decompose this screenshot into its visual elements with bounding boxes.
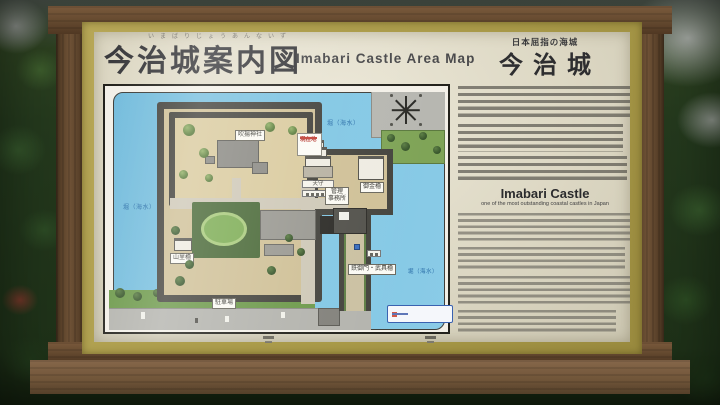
shrine-annex	[252, 162, 268, 174]
parking-label: 駐車場	[212, 298, 236, 309]
west-turret-building	[174, 238, 192, 251]
sign-title-japanese: 今治城案内図	[104, 36, 302, 80]
bottom-plank	[30, 360, 690, 394]
japanese-description-text	[458, 86, 630, 180]
east-turret-building	[358, 156, 384, 180]
road-direction-mark-right	[424, 336, 438, 344]
moat-label-north: 堀（海水）	[327, 118, 360, 127]
office-label: 管理 事務所	[325, 187, 349, 205]
sports-oval	[201, 212, 247, 246]
castle-subheading-english: one of the most outstanding coastal cast…	[455, 201, 635, 207]
compass-rose-icon	[393, 97, 419, 123]
castle-name-japanese: 今治城	[455, 45, 635, 80]
shrine-label: 吹揚神社	[235, 130, 265, 141]
keep-base	[303, 166, 333, 178]
castle-heading-english: Imabari Castle	[455, 186, 635, 201]
road-building	[318, 308, 340, 326]
english-description-text	[458, 213, 630, 335]
keep-tier-1	[305, 156, 331, 167]
small-building	[264, 244, 294, 256]
wooded-ground	[192, 202, 260, 258]
road-direction-mark-left	[262, 336, 276, 344]
path-vertical	[301, 182, 315, 304]
moat-label-west: 堀（海水）	[123, 202, 156, 211]
signboard-photo: いまばりじょうあんないず 今治城案内図 Imabari Castle Area …	[0, 0, 720, 405]
castle-area-map: 天守 御金櫓 山里櫓 吹揚神社 現在地 管理 事務所	[103, 84, 450, 334]
gate-small-plate	[367, 250, 381, 257]
sign-title-english: Imabari Castle Area Map	[296, 51, 475, 66]
moat-label-east: 堀（海水）	[408, 267, 438, 275]
legend-box	[387, 305, 453, 323]
east-turret-label: 御金櫓	[360, 182, 384, 193]
south-gate-label: 鉄御門・武具櫓	[348, 264, 396, 275]
you-are-here-box: 現在地	[297, 133, 322, 156]
path-shrine	[232, 178, 241, 200]
